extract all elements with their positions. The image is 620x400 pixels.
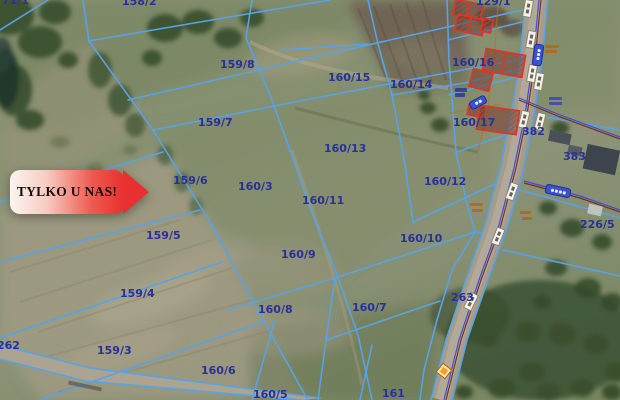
parcel-label-160/7: 160/7 (352, 302, 387, 313)
promo-banner-arrow-tip (123, 170, 149, 214)
parcel-label-160/14: 160/14 (390, 79, 432, 90)
promo-banner: TYLKO U NAS! (10, 170, 149, 214)
parcel-label-262: 262 (0, 340, 20, 351)
parcel-label-160/5: 160/5 (253, 389, 288, 400)
parcel-label-158/2: 158/2 (122, 0, 157, 7)
parcel-label-159/7: 159/7 (198, 117, 233, 128)
parcel-label-160/17: 160/17 (453, 117, 495, 128)
parcel-label-160/3: 160/3 (238, 181, 273, 192)
parcel-label-160/13: 160/13 (324, 143, 366, 154)
promo-banner-body: TYLKO U NAS! (10, 170, 124, 214)
cadastral-map[interactable]: 71/1158/2129/1160/16159/8160/15160/14159… (0, 0, 620, 400)
parcel-label-160/15: 160/15 (328, 72, 370, 83)
parcel-label-159/6: 159/6 (173, 175, 208, 186)
gray-buildings (548, 130, 620, 217)
parcel-label-160/8: 160/8 (258, 304, 293, 315)
parcel-label-263: 263 (451, 292, 474, 303)
parcel-label-160/11: 160/11 (302, 195, 344, 206)
parcel-label-160/9: 160/9 (281, 249, 316, 260)
parcel-label-159/8: 159/8 (220, 59, 255, 70)
parcel-label-159/5: 159/5 (146, 230, 181, 241)
parcel-label-383: 383 (563, 151, 586, 162)
parcel-label-160/10: 160/10 (400, 233, 442, 244)
parcel-label-71/1: 71/1 (2, 0, 29, 6)
parcel-label-160/6: 160/6 (201, 365, 236, 376)
parcel-label-160/12: 160/12 (424, 176, 466, 187)
parcel-label-161: 161 (382, 388, 405, 399)
promo-banner-text: TYLKO U NAS! (17, 184, 117, 200)
parcel-label-159/3: 159/3 (97, 345, 132, 356)
parcel-label-159/4: 159/4 (120, 288, 155, 299)
parcel-label-382: 382 (522, 126, 545, 137)
parcel-label-160/16: 160/16 (452, 57, 494, 68)
parcel-label-226/5: 226/5 (580, 219, 615, 230)
parcel-label-129/1: 129/1 (476, 0, 511, 7)
